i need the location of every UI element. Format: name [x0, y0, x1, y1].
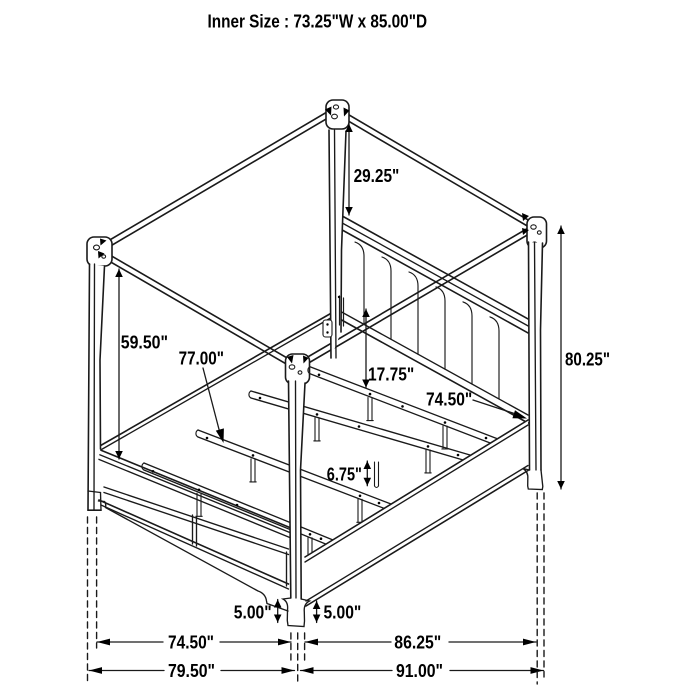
svg-text:5.00": 5.00": [324, 602, 362, 623]
svg-text:6.75": 6.75": [327, 464, 362, 485]
svg-text:29.25": 29.25": [354, 165, 400, 186]
svg-text:77.00": 77.00": [179, 348, 224, 369]
svg-text:80.25": 80.25": [565, 349, 610, 370]
svg-text:86.25": 86.25": [394, 632, 441, 653]
svg-text:91.00": 91.00": [396, 660, 443, 681]
svg-text:59.50": 59.50": [121, 331, 168, 352]
svg-text:Inner Size : 73.25"W x 85.00"D: Inner Size : 73.25"W x 85.00"D: [208, 10, 428, 31]
svg-text:5.00": 5.00": [234, 602, 272, 623]
svg-text:74.50": 74.50": [168, 632, 214, 653]
svg-text:79.50": 79.50": [168, 660, 215, 681]
svg-text:74.50": 74.50": [426, 389, 472, 410]
svg-text:17.75": 17.75": [368, 364, 414, 385]
